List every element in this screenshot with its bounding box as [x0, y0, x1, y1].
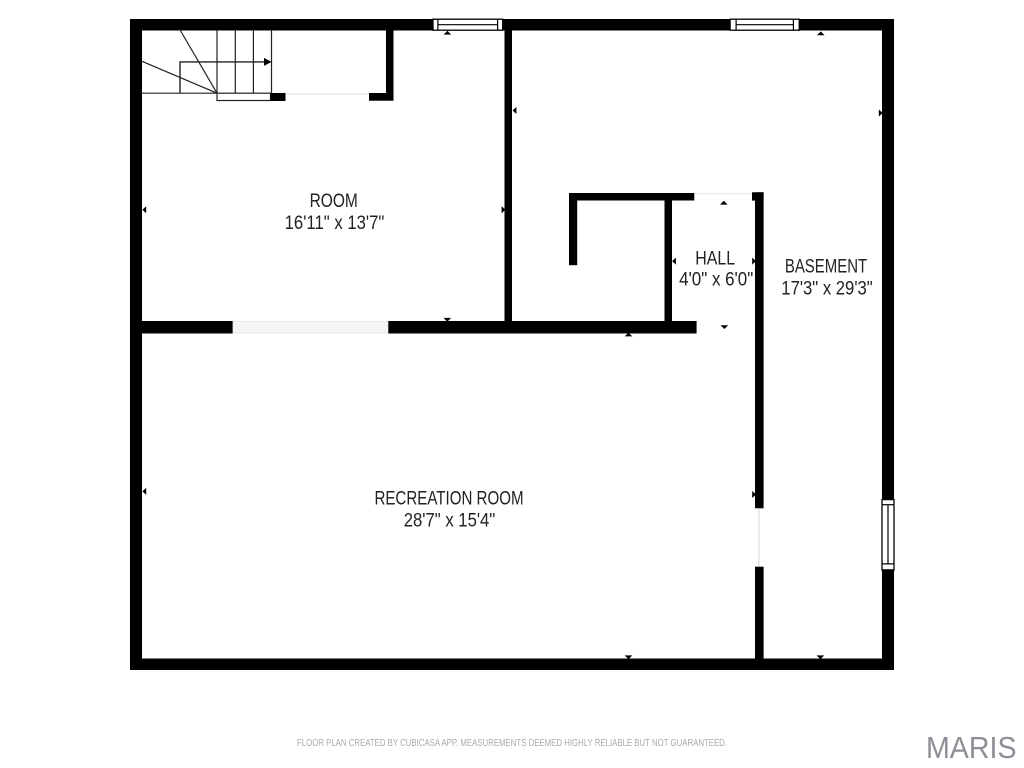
svg-text:RECREATION ROOM: RECREATION ROOM: [374, 488, 523, 510]
svg-text:HALL: HALL: [695, 248, 735, 270]
svg-text:16'11" x 13'7": 16'11" x 13'7": [285, 212, 385, 234]
svg-text:BASEMENT: BASEMENT: [785, 256, 867, 278]
svg-text:17'3" x 29'3": 17'3" x 29'3": [781, 278, 872, 300]
svg-text:FLOOR PLAN CREATED BY CUBICASA: FLOOR PLAN CREATED BY CUBICASA APP. MEAS…: [297, 738, 727, 749]
svg-text:28'7" x 15'4": 28'7" x 15'4": [404, 510, 496, 532]
svg-text:4'0" x 6'0": 4'0" x 6'0": [679, 268, 753, 290]
svg-text:MARIS: MARIS: [926, 731, 1017, 765]
svg-text:ROOM: ROOM: [310, 190, 358, 212]
